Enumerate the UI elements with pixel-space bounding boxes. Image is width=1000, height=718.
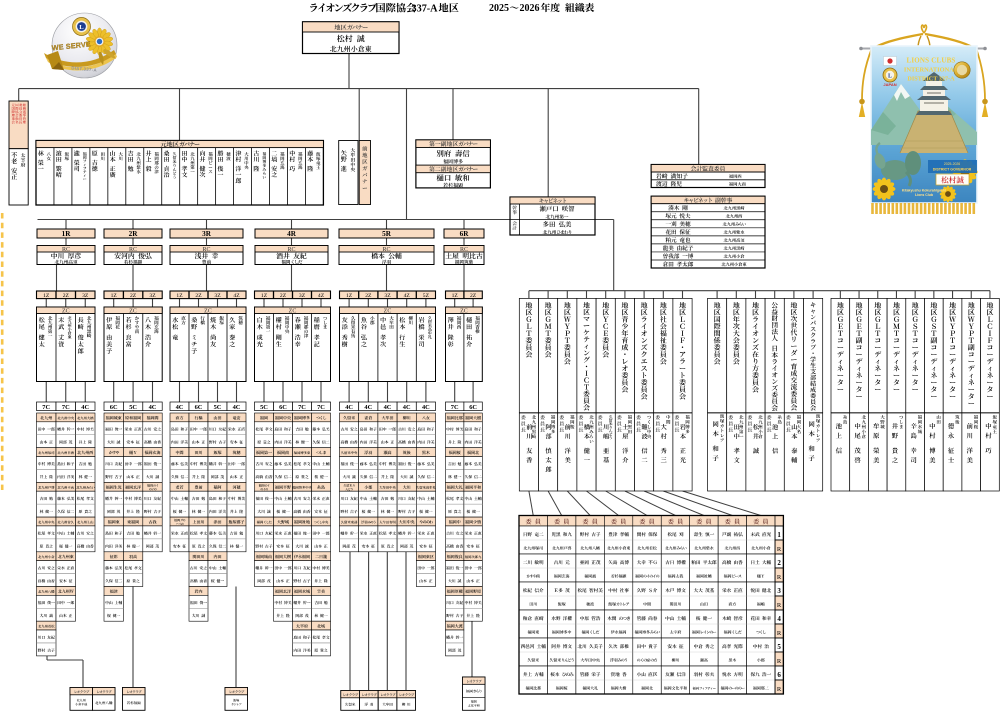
svg-text:1Z: 1Z xyxy=(346,293,353,299)
svg-text:1Z: 1Z xyxy=(43,293,50,299)
svg-text:2Z: 2Z xyxy=(365,293,372,299)
svg-text:3Z: 3Z xyxy=(384,293,391,299)
svg-text:ZC: ZC xyxy=(129,308,137,314)
svg-text:1Z: 1Z xyxy=(111,293,118,299)
svg-text:6C: 6C xyxy=(469,404,477,411)
svg-text:4C: 4C xyxy=(176,404,184,411)
svg-text:6: 6 xyxy=(777,671,781,679)
svg-text:6R: 6R xyxy=(460,230,470,238)
svg-text:1R: 1R xyxy=(62,230,72,238)
svg-text:2R: 2R xyxy=(129,230,139,238)
svg-text:5: 5 xyxy=(777,643,781,651)
svg-text:3Z: 3Z xyxy=(82,293,89,299)
svg-text:3Z: 3Z xyxy=(149,293,156,299)
svg-text:2026: 2026 xyxy=(520,3,540,14)
svg-text:R: R xyxy=(777,686,782,693)
svg-text:R: R xyxy=(777,546,782,553)
svg-text:INTERNATIONAL: INTERNATIONAL xyxy=(904,67,958,74)
svg-text:7C: 7C xyxy=(42,404,50,411)
svg-text:1Z: 1Z xyxy=(452,293,459,299)
svg-text:Lions Club: Lions Club xyxy=(915,193,933,197)
svg-text:3R: 3R xyxy=(202,230,212,238)
svg-text:ZC: ZC xyxy=(460,308,468,314)
svg-text:2Z: 2Z xyxy=(470,293,477,299)
svg-text:4R: 4R xyxy=(287,230,297,238)
svg-text:R: R xyxy=(777,630,782,637)
svg-text:5Z: 5Z xyxy=(423,293,430,299)
svg-text:1Z: 1Z xyxy=(261,293,268,299)
svg-text:7C: 7C xyxy=(451,404,459,411)
svg-text:4C: 4C xyxy=(364,404,372,411)
svg-text:5C: 5C xyxy=(260,404,268,411)
svg-text:ZC: ZC xyxy=(62,308,70,314)
svg-text:5C: 5C xyxy=(214,404,222,411)
svg-text:ZC: ZC xyxy=(289,308,297,314)
svg-text:LIONS CLUBS: LIONS CLUBS xyxy=(906,57,955,65)
svg-text:2Z: 2Z xyxy=(63,293,70,299)
svg-text:6C: 6C xyxy=(110,404,118,411)
svg-text:RC: RC xyxy=(202,247,210,253)
svg-text:4C: 4C xyxy=(149,404,157,411)
svg-text:DISTRICT GOVERNOR: DISTRICT GOVERNOR xyxy=(933,168,972,172)
svg-text:R: R xyxy=(777,574,782,581)
svg-text:337-A: 337-A xyxy=(412,4,439,15)
svg-text:RC: RC xyxy=(460,247,468,253)
svg-text:6C: 6C xyxy=(195,404,203,411)
svg-text:4Z: 4Z xyxy=(233,293,240,299)
svg-text:4Z: 4Z xyxy=(404,293,411,299)
svg-text:L: L xyxy=(888,74,892,80)
svg-text:6C: 6C xyxy=(279,404,287,411)
svg-text:4C: 4C xyxy=(384,404,392,411)
svg-text:ZC: ZC xyxy=(204,308,212,314)
svg-text:ZC: ZC xyxy=(384,308,392,314)
svg-text:1: 1 xyxy=(777,531,781,539)
svg-text:2Z: 2Z xyxy=(130,293,137,299)
svg-text:1Z: 1Z xyxy=(176,293,183,299)
svg-text:4C: 4C xyxy=(81,404,89,411)
svg-text:RC: RC xyxy=(129,247,137,253)
svg-text:RC: RC xyxy=(382,247,390,253)
svg-text:3: 3 xyxy=(777,587,781,595)
svg-text:4C: 4C xyxy=(403,404,411,411)
svg-text:R: R xyxy=(777,602,782,609)
svg-text:7C: 7C xyxy=(317,404,325,411)
svg-text:3Z: 3Z xyxy=(299,293,306,299)
svg-text:4Z: 4Z xyxy=(318,293,325,299)
svg-text:RC: RC xyxy=(62,247,70,253)
svg-text:DISTRICT 337-A: DISTRICT 337-A xyxy=(907,76,955,83)
svg-text:4C: 4C xyxy=(422,404,430,411)
svg-text:L: L xyxy=(79,24,84,31)
svg-text:5R: 5R xyxy=(382,230,392,238)
svg-text:7C: 7C xyxy=(62,404,70,411)
svg-text:5C: 5C xyxy=(129,404,137,411)
svg-text:RC: RC xyxy=(287,247,295,253)
svg-text:2025-2026: 2025-2026 xyxy=(944,162,960,166)
svg-text:2Z: 2Z xyxy=(195,293,202,299)
svg-text:7C: 7C xyxy=(298,404,306,411)
svg-text:2Z: 2Z xyxy=(280,293,287,299)
svg-text:Kitakyushu Kokurahigashi: Kitakyushu Kokurahigashi xyxy=(902,189,946,193)
svg-text:2: 2 xyxy=(777,559,781,567)
svg-text:2025: 2025 xyxy=(489,3,509,14)
svg-text:JAPAN: JAPAN xyxy=(883,82,896,87)
svg-text:4: 4 xyxy=(777,615,781,623)
svg-text:4C: 4C xyxy=(345,404,353,411)
svg-text:4C: 4C xyxy=(233,404,241,411)
svg-text:R: R xyxy=(777,658,782,665)
svg-text:3Z: 3Z xyxy=(214,293,221,299)
